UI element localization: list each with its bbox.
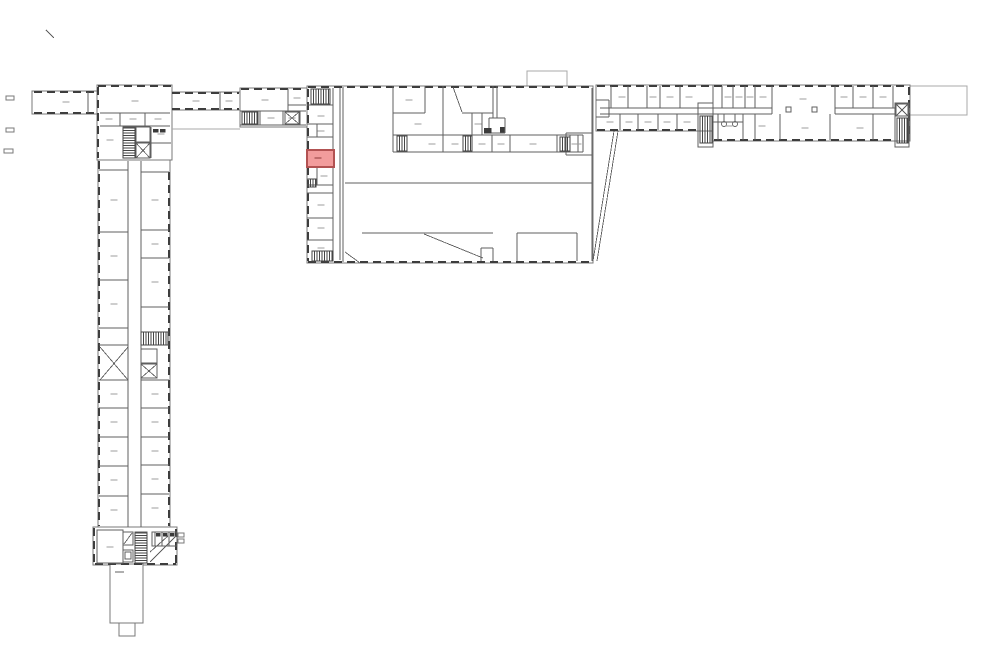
building-envelopes	[32, 71, 967, 636]
floor-plan-viewport	[0, 0, 1000, 666]
floor-plan-svg	[0, 0, 1000, 666]
highlight-layer	[307, 150, 334, 167]
